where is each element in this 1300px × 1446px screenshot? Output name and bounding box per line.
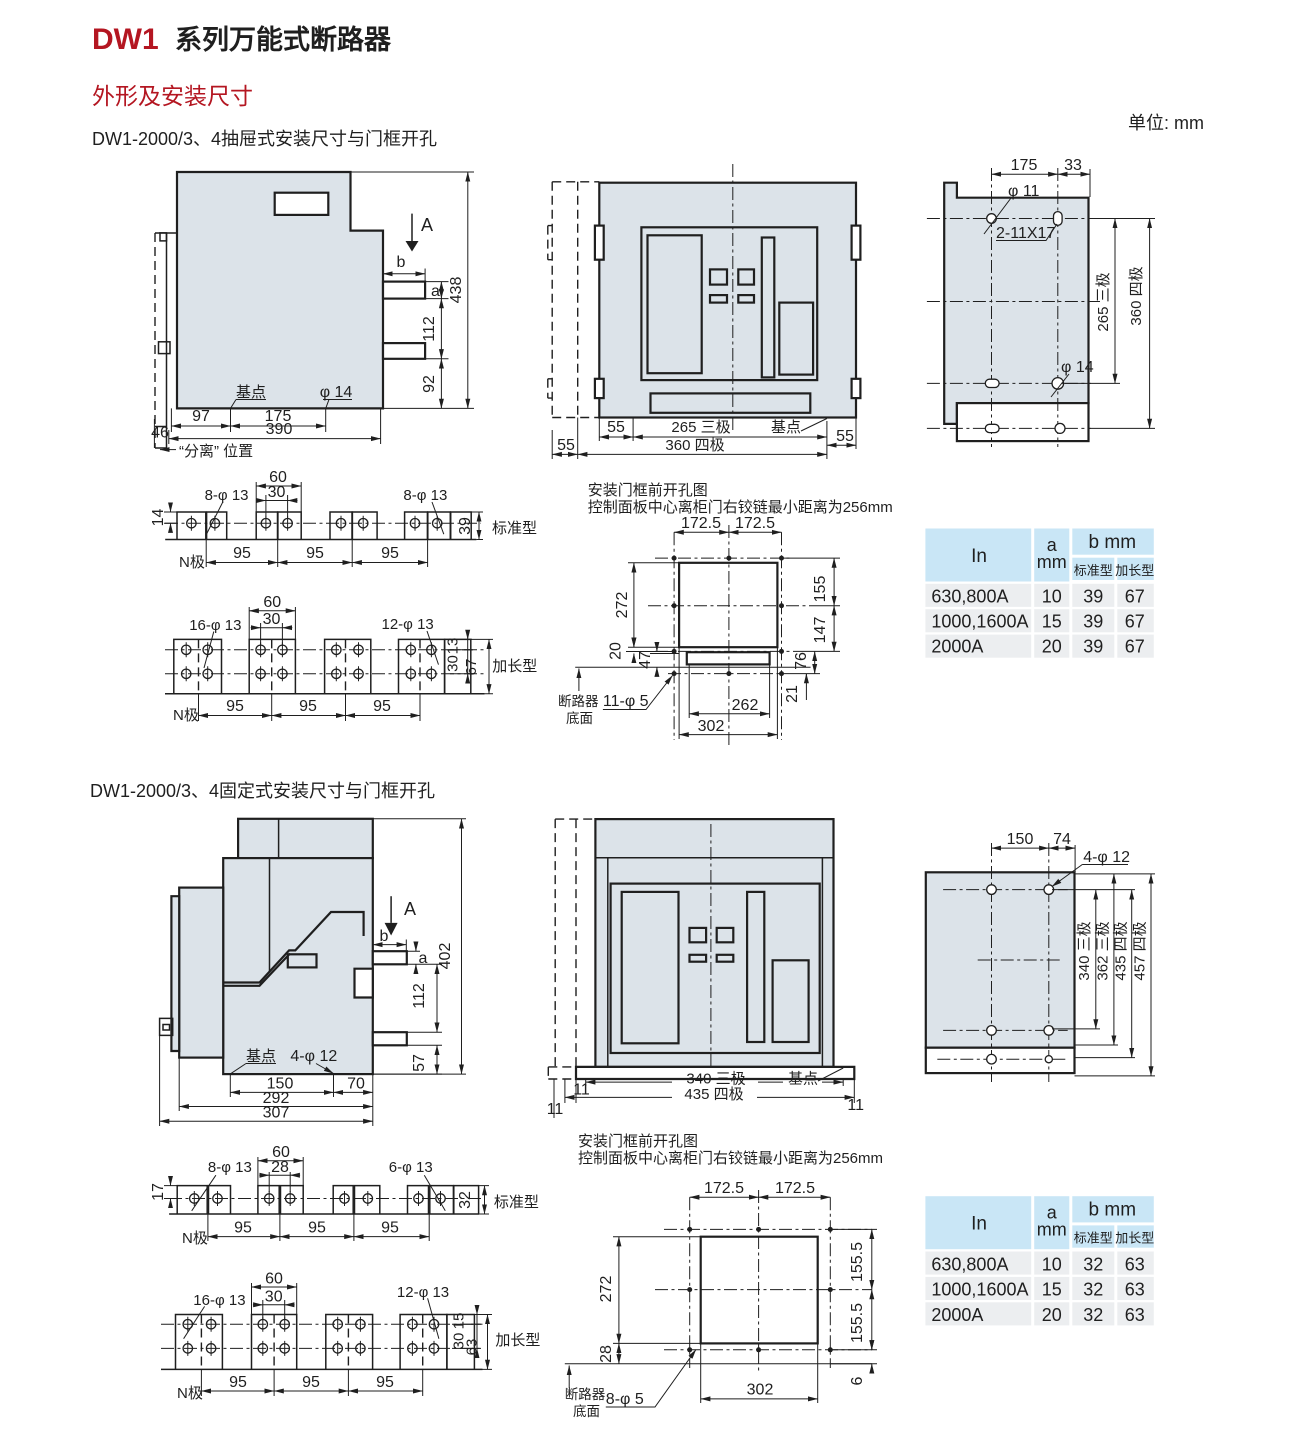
svg-text:55: 55 [607, 419, 625, 436]
svg-text:a: a [431, 283, 440, 300]
svg-text:1000,1600A: 1000,1600A [931, 1280, 1028, 1300]
svg-text:断路器: 断路器 [565, 1387, 606, 1402]
svg-text:11: 11 [547, 1101, 564, 1118]
svg-text:a: a [419, 950, 428, 967]
svg-text:63: 63 [464, 1339, 481, 1356]
svg-text:172.5: 172.5 [775, 1180, 815, 1197]
svg-text:mm: mm [1037, 1220, 1067, 1240]
svg-text:φ 14: φ 14 [1061, 359, 1094, 376]
svg-text:457 四极: 457 四极 [1132, 921, 1149, 980]
svg-text:6-φ 13: 6-φ 13 [389, 1159, 433, 1176]
svg-text:标准型: 标准型 [494, 1194, 539, 1211]
svg-text:10: 10 [1042, 587, 1062, 607]
svg-text:272: 272 [598, 1276, 615, 1303]
svg-text:32: 32 [1083, 1280, 1103, 1300]
svg-text:加长型: 加长型 [1115, 1231, 1154, 1246]
svg-text:加长型: 加长型 [495, 1332, 540, 1349]
svg-text:15: 15 [1042, 1280, 1062, 1300]
svg-text:302: 302 [747, 1382, 774, 1399]
svg-text:6: 6 [849, 1376, 866, 1385]
svg-text:12-φ 13: 12-φ 13 [397, 1284, 449, 1301]
svg-text:安装门框前开孔图: 安装门框前开孔图 [588, 482, 708, 499]
svg-text:4-φ 12: 4-φ 12 [290, 1048, 337, 1065]
svg-text:13: 13 [445, 638, 462, 655]
svg-text:630,800A: 630,800A [931, 1255, 1008, 1275]
svg-text:112: 112 [421, 316, 438, 342]
svg-text:63: 63 [1125, 1305, 1145, 1325]
svg-text:21: 21 [784, 685, 801, 703]
svg-text:28: 28 [598, 1345, 615, 1363]
svg-text:17: 17 [150, 1183, 167, 1201]
svg-text:39: 39 [1083, 637, 1103, 657]
svg-text:基点: 基点 [236, 384, 266, 401]
svg-text:8-φ 13: 8-φ 13 [208, 1159, 252, 1176]
svg-text:“分离” 位置: “分离” 位置 [179, 443, 253, 460]
svg-text:30: 30 [445, 655, 462, 672]
svg-text:150: 150 [1007, 831, 1034, 848]
svg-text:10: 10 [1042, 1255, 1062, 1275]
svg-text:97: 97 [192, 408, 210, 425]
svg-text:DW1: DW1 [92, 23, 159, 56]
svg-text:b mm: b mm [1089, 1200, 1137, 1221]
svg-text:74: 74 [1053, 831, 1071, 848]
svg-text:15: 15 [1042, 612, 1062, 632]
svg-text:4-φ 12: 4-φ 12 [1083, 849, 1130, 866]
svg-text:362 三极: 362 三极 [1095, 921, 1112, 980]
svg-text:标准型: 标准型 [492, 520, 537, 537]
svg-text:307: 307 [263, 1105, 290, 1122]
svg-text:N极: N极 [182, 1230, 208, 1247]
svg-text:20: 20 [608, 642, 625, 660]
svg-text:435 四极: 435 四极 [684, 1086, 743, 1103]
svg-text:95: 95 [376, 1374, 394, 1391]
svg-text:630,800A: 630,800A [931, 587, 1008, 607]
svg-text:N极: N极 [177, 1385, 203, 1402]
svg-text:断路器: 断路器 [558, 694, 599, 709]
svg-text:95: 95 [302, 1374, 320, 1391]
svg-text:172.5: 172.5 [704, 1180, 744, 1197]
svg-text:57: 57 [411, 1054, 428, 1072]
svg-text:67: 67 [463, 659, 480, 676]
svg-text:b mm: b mm [1089, 532, 1137, 553]
svg-text:DW1-2000/3、4固定式安装尺寸与门框开孔: DW1-2000/3、4固定式安装尺寸与门框开孔 [90, 781, 435, 801]
svg-text:402: 402 [437, 943, 454, 970]
svg-text:加长型: 加长型 [492, 658, 537, 675]
svg-text:安装门框前开孔图: 安装门框前开孔图 [578, 1133, 698, 1150]
svg-text:340 三极: 340 三极 [1076, 921, 1093, 980]
svg-text:mm: mm [1037, 552, 1067, 572]
svg-text:A: A [404, 899, 416, 919]
svg-text:2000A: 2000A [931, 637, 983, 657]
svg-text:In: In [971, 546, 987, 567]
svg-text:76: 76 [793, 652, 810, 670]
svg-text:95: 95 [381, 1220, 399, 1237]
svg-text:N极: N极 [179, 554, 205, 571]
svg-text:30: 30 [268, 484, 286, 501]
svg-text:外形及安装尺寸: 外形及安装尺寸 [92, 83, 253, 109]
svg-text:基点: 基点 [246, 1048, 276, 1065]
svg-text:390: 390 [266, 421, 293, 438]
svg-text:16-φ 13: 16-φ 13 [193, 1292, 245, 1309]
svg-text:11-φ 5: 11-φ 5 [603, 693, 649, 710]
svg-text:95: 95 [234, 1220, 252, 1237]
svg-text:360 四极: 360 四极 [1128, 266, 1145, 325]
svg-text:标准型: 标准型 [1074, 1231, 1113, 1246]
svg-text:A: A [421, 215, 433, 235]
svg-text:φ 14: φ 14 [320, 384, 353, 401]
svg-text:b: b [397, 254, 406, 271]
svg-text:95: 95 [229, 1374, 247, 1391]
svg-text:95: 95 [299, 698, 317, 715]
svg-text:32: 32 [1083, 1305, 1103, 1325]
svg-text:360 四极: 360 四极 [665, 437, 724, 454]
svg-text:32: 32 [457, 1191, 474, 1209]
svg-text:32: 32 [1083, 1255, 1103, 1275]
svg-text:155: 155 [812, 576, 829, 603]
svg-text:262: 262 [732, 697, 759, 714]
svg-text:172.5: 172.5 [681, 515, 721, 532]
svg-text:67: 67 [1125, 637, 1145, 657]
svg-text:28: 28 [271, 1159, 289, 1176]
svg-text:95: 95 [373, 698, 391, 715]
svg-text:39: 39 [1083, 587, 1103, 607]
svg-text:DW1-2000/3、4抽屉式安装尺寸与门框开孔: DW1-2000/3、4抽屉式安装尺寸与门框开孔 [92, 129, 437, 149]
svg-text:N极: N极 [173, 707, 199, 724]
svg-text:15: 15 [451, 1313, 468, 1330]
svg-text:39: 39 [1083, 612, 1103, 632]
svg-text:70: 70 [347, 1076, 365, 1093]
svg-text:20: 20 [1042, 637, 1062, 657]
svg-text:67: 67 [1125, 612, 1145, 632]
svg-text:92: 92 [421, 375, 438, 393]
svg-text:基点: 基点 [788, 1071, 818, 1088]
svg-text:底面: 底面 [573, 1404, 600, 1419]
svg-text:2000A: 2000A [931, 1305, 983, 1325]
svg-text:265 三极: 265 三极 [671, 419, 730, 436]
svg-text:438: 438 [448, 277, 465, 304]
svg-text:95: 95 [233, 545, 251, 562]
svg-text:33: 33 [1064, 157, 1082, 174]
svg-text:标准型: 标准型 [1074, 563, 1113, 578]
svg-text:加长型: 加长型 [1115, 563, 1154, 578]
svg-text:265 三极: 265 三极 [1095, 272, 1112, 331]
svg-text:55: 55 [557, 437, 575, 454]
svg-text:In: In [971, 1214, 987, 1235]
svg-text:95: 95 [308, 1220, 326, 1237]
svg-text:272: 272 [614, 592, 631, 619]
svg-text:12-φ 13: 12-φ 13 [382, 616, 434, 633]
svg-text:172.5: 172.5 [735, 515, 775, 532]
svg-text:63: 63 [1125, 1255, 1145, 1275]
svg-text:60: 60 [265, 1271, 283, 1288]
svg-text:155.5: 155.5 [849, 1303, 866, 1343]
svg-text:8-φ 13: 8-φ 13 [205, 487, 249, 504]
svg-text:60: 60 [263, 594, 281, 611]
svg-text:单位: mm: 单位: mm [1128, 113, 1204, 133]
svg-text:φ 11: φ 11 [1008, 183, 1040, 200]
svg-text:控制面板中心离柜门右铰链最小距离为256mm: 控制面板中心离柜门右铰链最小距离为256mm [578, 1149, 883, 1167]
svg-text:302: 302 [698, 718, 725, 735]
svg-text:147: 147 [812, 617, 829, 644]
svg-text:30: 30 [263, 611, 281, 628]
svg-text:控制面板中心离柜门右铰链最小距离为256mm: 控制面板中心离柜门右铰链最小距离为256mm [588, 498, 893, 516]
svg-text:基点: 基点 [771, 419, 801, 436]
svg-text:95: 95 [226, 698, 244, 715]
svg-text:95: 95 [381, 545, 399, 562]
svg-text:63: 63 [1125, 1280, 1145, 1300]
svg-text:175: 175 [1011, 157, 1038, 174]
svg-text:435 四极: 435 四极 [1113, 921, 1130, 980]
svg-text:95: 95 [306, 545, 324, 562]
svg-text:1000,1600A: 1000,1600A [931, 612, 1028, 632]
svg-text:11: 11 [573, 1082, 590, 1099]
svg-text:46: 46 [151, 425, 169, 442]
svg-text:20: 20 [1042, 1305, 1062, 1325]
svg-text:67: 67 [1125, 587, 1145, 607]
svg-text:155.5: 155.5 [849, 1242, 866, 1282]
svg-text:112: 112 [411, 983, 428, 1009]
svg-text:系列万能式断路器: 系列万能式断路器 [175, 24, 392, 55]
svg-text:30: 30 [265, 1289, 283, 1306]
svg-text:底面: 底面 [566, 711, 593, 726]
svg-text:55: 55 [836, 428, 854, 445]
svg-text:8-φ 13: 8-φ 13 [403, 487, 447, 504]
svg-text:47: 47 [637, 651, 654, 669]
svg-text:11: 11 [847, 1097, 864, 1114]
svg-text:8-φ 5: 8-φ 5 [606, 1391, 644, 1408]
svg-text:16-φ 13: 16-φ 13 [189, 617, 241, 634]
svg-text:b: b [380, 928, 389, 945]
svg-text:39: 39 [457, 517, 474, 535]
svg-text:14: 14 [150, 509, 167, 527]
